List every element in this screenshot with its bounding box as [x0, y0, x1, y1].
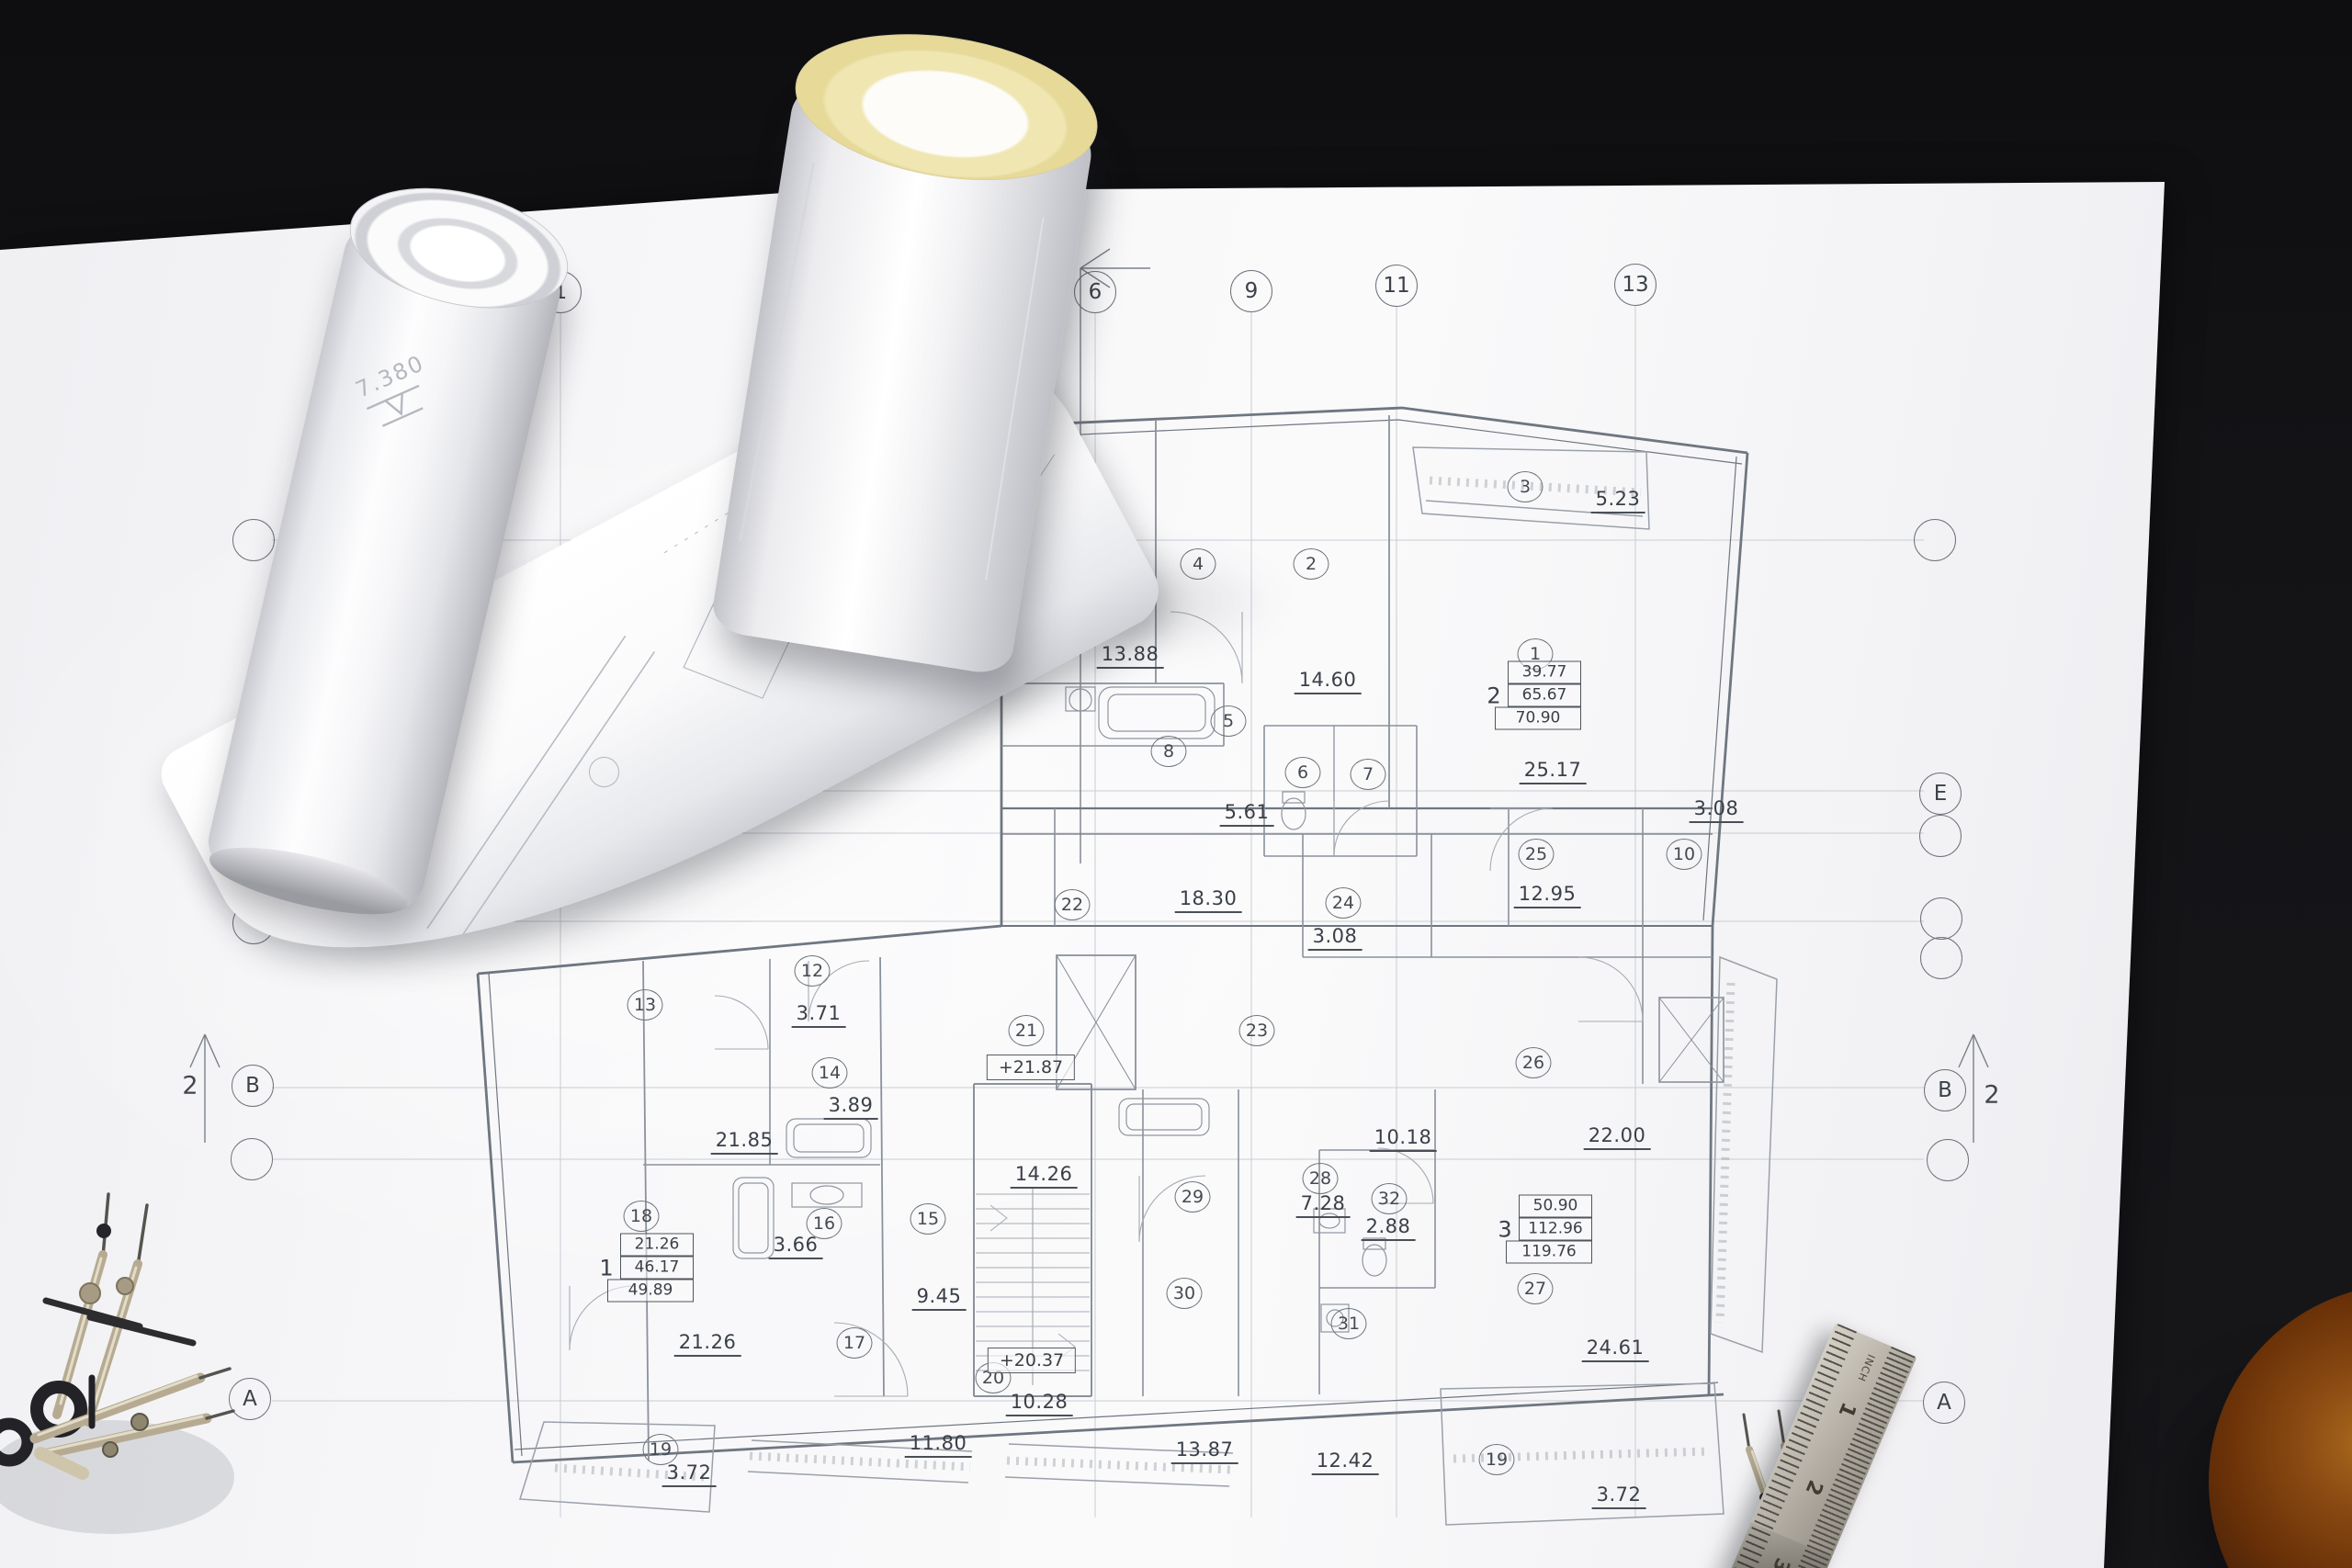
dimension-label: 10.18	[1370, 1126, 1437, 1152]
room-number-bubble: 21	[1009, 1015, 1045, 1046]
apartment-area-value: 39.77	[1508, 661, 1581, 684]
room-number-bubble: 22	[1055, 889, 1091, 920]
grid-bubble-B: B	[1924, 1069, 1966, 1111]
apartment-area-value: 49.89	[607, 1280, 694, 1303]
dimension-label: 12.95	[1514, 883, 1581, 908]
room-number-bubble: 31	[1331, 1308, 1367, 1339]
grid-bubble-blank	[1920, 897, 1962, 940]
room-number-bubble: 18	[624, 1201, 660, 1232]
dimension-label: 3.72	[1592, 1483, 1646, 1509]
apartment-area-value: 70.90	[1495, 707, 1581, 730]
dimension-label: 13.87	[1171, 1438, 1238, 1464]
room-number-bubble: 17	[837, 1327, 873, 1359]
level-mark-label: +20.37	[988, 1348, 1076, 1373]
room-number-bubble: 2	[1294, 548, 1329, 580]
apartment-area-table: 239.7765.6770.90	[1480, 661, 1581, 730]
section-marker-label: 2	[1984, 1081, 1999, 1110]
dimension-label: 18.30	[1175, 887, 1242, 913]
photo-scene: 1691113EBAEBA423158672510222412132123142…	[0, 0, 2352, 1568]
grid-bubble-6: 6	[1074, 271, 1116, 313]
room-number-bubble: 23	[1239, 1015, 1275, 1046]
apartment-area-value: 112.96	[1519, 1218, 1592, 1241]
dimension-label: 25.17	[1520, 759, 1587, 784]
apartment-area-table: 121.2646.1749.89	[593, 1234, 694, 1303]
room-number-bubble: 32	[1372, 1183, 1408, 1214]
dimension-label: 3.66	[769, 1234, 823, 1259]
dimension-label: 13.88	[1097, 643, 1164, 669]
section-marker-label: 2	[182, 1072, 198, 1100]
apartment-area-table: 350.90112.96119.76	[1491, 1195, 1592, 1264]
grid-bubble-blank	[1919, 815, 1962, 857]
room-number-bubble: 7	[1351, 759, 1386, 790]
room-number-bubble: 6	[1285, 757, 1321, 788]
room-number-bubble: 5	[1211, 705, 1247, 737]
apartment-area-value: 21.26	[620, 1234, 694, 1257]
grid-bubble-B: B	[232, 1065, 274, 1107]
room-number-bubble: 19	[1479, 1444, 1515, 1475]
room-number-bubble: 30	[1167, 1278, 1203, 1309]
dimension-label: 22.00	[1584, 1124, 1651, 1150]
dimension-label: 11.80	[905, 1432, 972, 1458]
room-number-bubble: 12	[795, 955, 831, 987]
dimension-label: 12.42	[1312, 1450, 1379, 1475]
level-mark-label: +21.87	[987, 1055, 1075, 1080]
dimension-label: 14.60	[1295, 669, 1362, 694]
grid-bubble-11: 11	[1375, 265, 1418, 307]
room-number-bubble: 14	[812, 1057, 848, 1089]
room-number-bubble: 4	[1181, 548, 1216, 580]
room-number-bubble: 15	[910, 1203, 946, 1235]
room-number-bubble: 8	[1151, 736, 1187, 767]
grid-bubble-13: 13	[1614, 264, 1657, 306]
dimension-label: 2.88	[1362, 1215, 1416, 1241]
dimension-label: 5.61	[1220, 801, 1274, 827]
dimension-label: 5.23	[1591, 488, 1645, 513]
ruler-number: 2	[1800, 1474, 1828, 1500]
grid-bubble-blank	[1920, 937, 1962, 979]
dimension-label: 10.28	[1006, 1391, 1073, 1416]
dimension-label: 21.26	[674, 1331, 741, 1357]
room-number-bubble: 26	[1516, 1047, 1552, 1078]
dimension-label: 9.45	[912, 1285, 967, 1311]
grid-bubble-blank	[232, 519, 275, 561]
room-number-bubble: 28	[1303, 1163, 1339, 1194]
drafting-compass-icon	[0, 1146, 276, 1568]
apartment-area-value: 46.17	[620, 1257, 694, 1280]
ruler-unit-label: INCH	[1855, 1352, 1877, 1383]
room-number-bubble: 10	[1667, 839, 1702, 870]
room-number-bubble: 24	[1326, 887, 1362, 919]
room-number-bubble: 19	[643, 1434, 679, 1465]
apartment-area-value: 119.76	[1506, 1241, 1592, 1264]
dimension-label: 24.61	[1582, 1337, 1649, 1362]
dimension-label: 7.28	[1296, 1192, 1351, 1218]
dimension-label: 3.08	[1308, 925, 1363, 951]
apartment-area-value: 65.67	[1508, 684, 1581, 707]
room-number-bubble: 27	[1518, 1273, 1554, 1304]
dimension-label: 3.71	[792, 1002, 846, 1028]
dimension-label: 21.85	[711, 1129, 778, 1155]
room-number-bubble: 13	[628, 989, 663, 1021]
room-number-bubble: 25	[1519, 839, 1555, 870]
ruler-number: 1	[1833, 1397, 1861, 1423]
apartment-area-value: 50.90	[1519, 1195, 1592, 1218]
dimension-label: 3.89	[824, 1094, 878, 1120]
grid-bubble-E: E	[1919, 773, 1962, 815]
dimension-label: 14.26	[1011, 1163, 1078, 1189]
grid-bubble-A: A	[1923, 1382, 1965, 1424]
grid-bubble-blank	[1914, 519, 1956, 561]
room-number-bubble: 29	[1175, 1181, 1211, 1213]
dimension-label: 3.08	[1690, 797, 1744, 823]
dimension-label: 3.72	[662, 1461, 717, 1487]
grid-bubble-blank	[1927, 1139, 1969, 1181]
room-number-bubble: 3	[1508, 471, 1543, 502]
grid-bubble-9: 9	[1230, 270, 1272, 312]
